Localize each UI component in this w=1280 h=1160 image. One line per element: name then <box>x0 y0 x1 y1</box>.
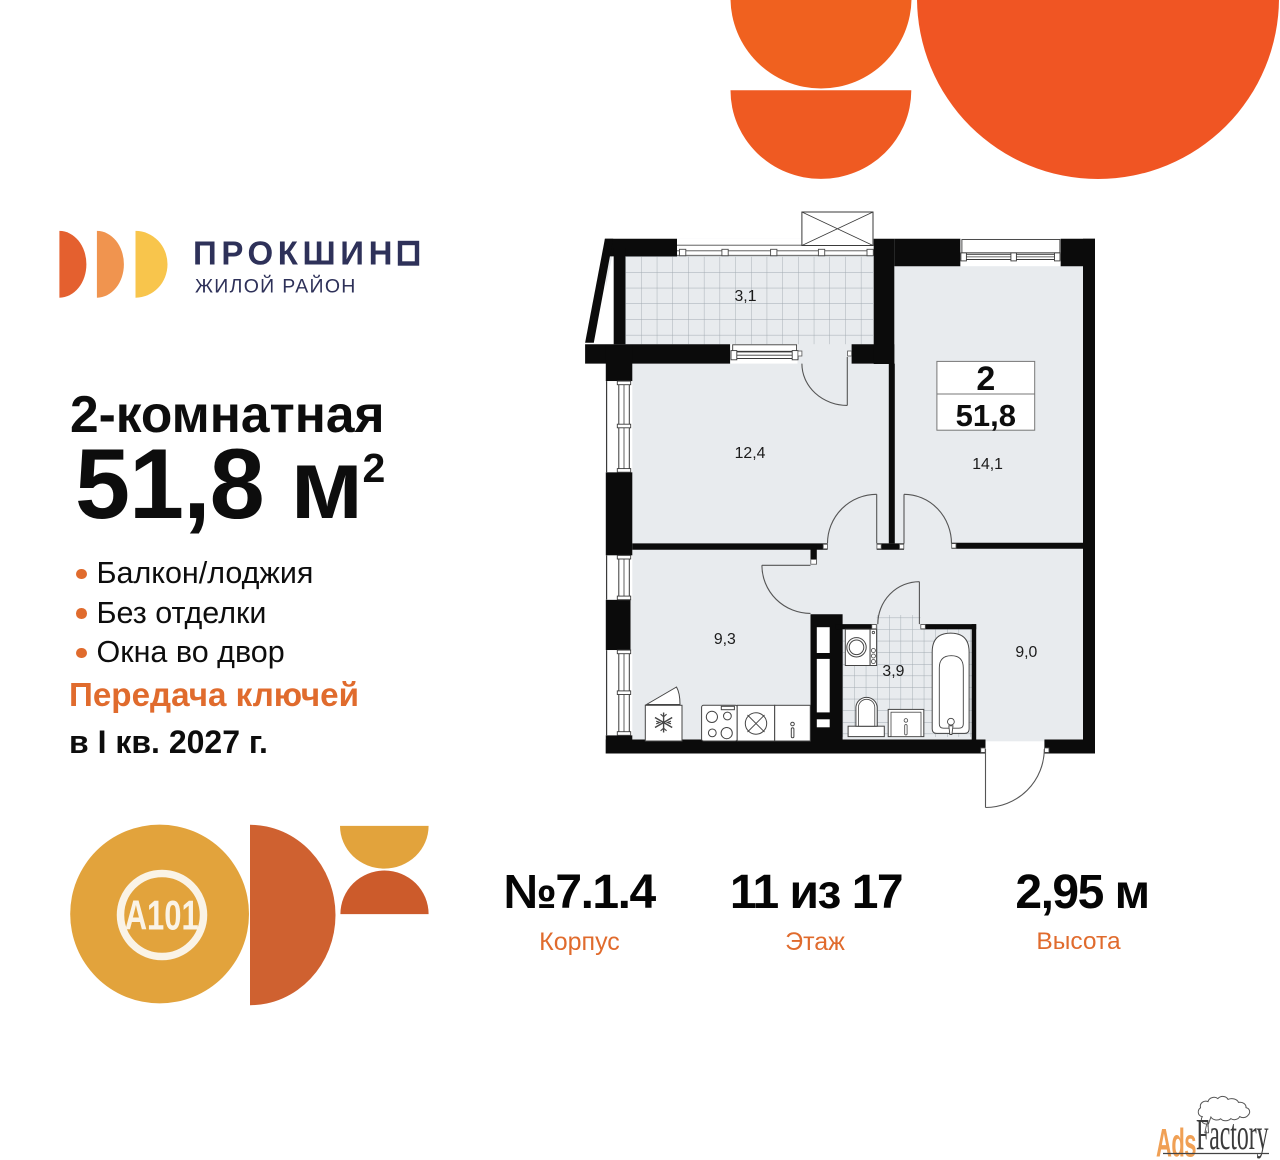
svg-text:9,3: 9,3 <box>714 631 736 648</box>
svg-text:9,0: 9,0 <box>1015 644 1037 661</box>
svg-text:51,8: 51,8 <box>956 398 1016 433</box>
svg-text:ПРОКШИН: ПРОКШИН <box>193 235 397 272</box>
svg-text:A101: A101 <box>125 892 199 939</box>
svg-text:Factory: Factory <box>1196 1109 1269 1159</box>
svg-text:14,1: 14,1 <box>972 456 1003 473</box>
svg-text:2: 2 <box>976 360 995 398</box>
svg-text:ЖИЛОЙ РАЙОН: ЖИЛОЙ РАЙОН <box>195 274 357 298</box>
svg-text:3,9: 3,9 <box>882 663 904 680</box>
svg-text:12,4: 12,4 <box>735 445 766 462</box>
svg-text:3,1: 3,1 <box>735 288 757 305</box>
